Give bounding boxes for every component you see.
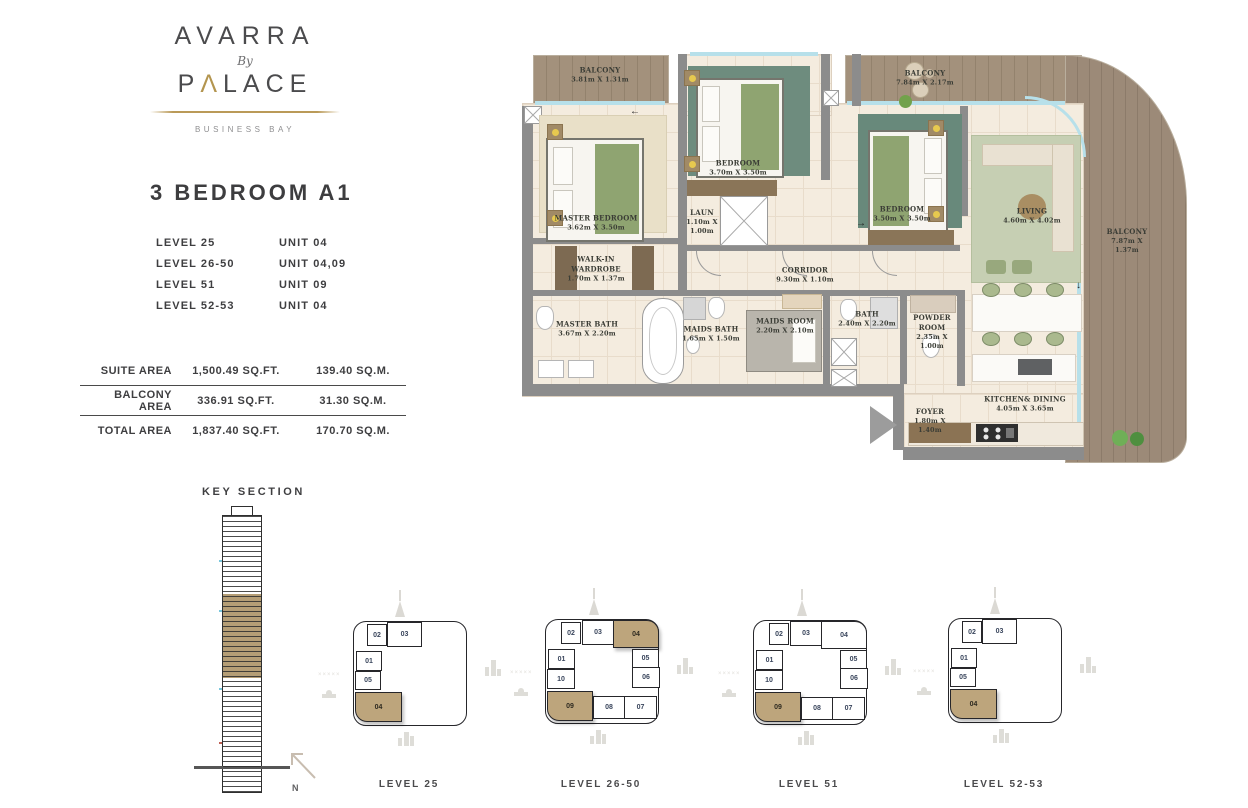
area-sqm: 31.30 SQ.M. bbox=[300, 395, 406, 407]
balcony-chair bbox=[912, 82, 929, 98]
buildings-icon bbox=[590, 730, 606, 744]
direction-arrow-icon: ↓ bbox=[1076, 280, 1081, 291]
unit-cell: 02 bbox=[367, 624, 387, 646]
palace-p: P bbox=[178, 70, 201, 98]
gold-arch-icon: Λ bbox=[200, 70, 223, 98]
north-label: N bbox=[292, 783, 299, 793]
level-label: LEVEL 26-50 bbox=[156, 258, 279, 270]
key-section-title: KEY SECTION bbox=[202, 486, 305, 498]
dining-chair bbox=[1046, 332, 1064, 346]
palm-icon bbox=[1112, 430, 1128, 446]
burj-spire-icon bbox=[990, 587, 1000, 614]
wardrobe bbox=[868, 230, 954, 245]
level-row: LEVEL 26-50UNIT 04,09 bbox=[156, 258, 416, 270]
unit-cell: 06 bbox=[632, 667, 660, 688]
wall-lamp-icon bbox=[547, 124, 563, 140]
keyplan-label: LEVEL 25 bbox=[329, 779, 489, 790]
unit-cell: 03 bbox=[582, 620, 614, 645]
level-label: LEVEL 25 bbox=[156, 237, 279, 249]
wall-left bbox=[522, 106, 533, 396]
toilet bbox=[708, 297, 725, 319]
area-sqm: 139.40 SQ.M. bbox=[300, 365, 406, 377]
unit-cell: 07 bbox=[832, 697, 865, 720]
tower-tick bbox=[219, 560, 222, 562]
unit-label: UNIT 04,09 bbox=[279, 258, 346, 270]
area-sqft: 1,500.49 SQ.FT. bbox=[172, 365, 300, 377]
unit-cell: 05 bbox=[355, 671, 381, 690]
bridge-icon: ××××× bbox=[913, 669, 936, 675]
shaft-icon bbox=[823, 90, 839, 106]
stove-icon bbox=[976, 424, 1018, 442]
unit-cell: 08 bbox=[593, 696, 625, 719]
wall-lamp-icon bbox=[928, 120, 944, 136]
tower-tick bbox=[219, 688, 222, 690]
unit-cell: 03 bbox=[387, 622, 422, 647]
unit-cell: 02 bbox=[962, 621, 982, 643]
sink bbox=[568, 360, 594, 378]
pouf bbox=[1012, 260, 1032, 274]
buildings-icon bbox=[677, 658, 693, 674]
burj-spire-icon bbox=[797, 589, 807, 616]
bridge-icon: ××××× bbox=[510, 670, 533, 676]
unit-label: UNIT 04 bbox=[279, 300, 328, 312]
level-label: LEVEL 52-53 bbox=[156, 300, 279, 312]
unit-cell: 08 bbox=[801, 697, 833, 720]
walkin-closet bbox=[632, 246, 654, 290]
shaft-icon bbox=[831, 338, 857, 366]
keyplan-level-26-50: 02 03 04 01 10 05 06 09 08 07 bbox=[545, 619, 659, 724]
level-row: LEVEL 25UNIT 04 bbox=[156, 237, 416, 249]
boat-icon bbox=[514, 688, 528, 696]
north-arrow-icon bbox=[284, 746, 320, 782]
window-top-right bbox=[847, 101, 1065, 105]
area-sqft: 336.91 SQ.FT. bbox=[172, 395, 300, 407]
floor-plan: ← → ↓ BALCONY3.81m X 1.31m BEDROOM3.70m … bbox=[520, 38, 1188, 483]
brand-palace: PΛLACE bbox=[150, 70, 340, 99]
wardrobe bbox=[687, 180, 777, 196]
bathtub bbox=[642, 298, 684, 384]
wall-walkin-bottom bbox=[533, 290, 678, 296]
kitchen-cabinet bbox=[909, 423, 971, 443]
dining-chair bbox=[1014, 332, 1032, 346]
level-label: LEVEL 51 bbox=[156, 279, 279, 291]
palm-icon bbox=[1130, 432, 1144, 446]
dining-chair bbox=[982, 283, 1000, 297]
unit-cell-highlight: 09 bbox=[547, 691, 593, 721]
window-bedroom-mid bbox=[690, 52, 818, 56]
area-table: SUITE AREA 1,500.49 SQ.FT. 139.40 SQ.M. … bbox=[80, 356, 406, 445]
area-sqm: 170.70 SQ.M. bbox=[300, 425, 406, 437]
unit-cell: 06 bbox=[840, 668, 868, 689]
key-section-tower bbox=[222, 515, 262, 793]
unit-cell: 01 bbox=[756, 650, 783, 670]
bed-duvet bbox=[595, 144, 639, 234]
tower-highlight-band bbox=[223, 594, 261, 678]
buildings-icon bbox=[485, 660, 501, 676]
keyplan-label: LEVEL 26-50 bbox=[521, 779, 681, 790]
unit-cell: 01 bbox=[951, 648, 977, 668]
walkin-closet bbox=[555, 246, 577, 290]
palace-rest: LACE bbox=[223, 70, 312, 98]
maids-bed bbox=[746, 310, 822, 372]
unit-cell-highlight: 09 bbox=[755, 692, 801, 722]
bed-pillow bbox=[924, 138, 942, 174]
area-label: TOTAL AREA bbox=[80, 425, 172, 437]
dining-chair bbox=[1014, 283, 1032, 297]
plant-icon bbox=[899, 95, 912, 108]
buildings-icon bbox=[1080, 657, 1096, 673]
unit-cell: 03 bbox=[790, 621, 822, 646]
sink bbox=[538, 360, 564, 378]
unit-cell: 02 bbox=[561, 622, 581, 644]
shower bbox=[683, 297, 706, 320]
buildings-icon bbox=[398, 732, 414, 746]
buildings-icon bbox=[993, 729, 1009, 743]
sink bbox=[686, 336, 700, 354]
bathtub-inner bbox=[649, 307, 677, 375]
brand-logo: AVARRA By PΛLACE BUSINESS BAY bbox=[150, 22, 340, 134]
shaft-icon bbox=[831, 369, 857, 387]
entry-arrow-icon bbox=[870, 406, 897, 444]
direction-arrow-icon: → bbox=[856, 218, 866, 229]
bedroom-mid-bed bbox=[696, 78, 784, 178]
wall-bath-powder bbox=[900, 290, 907, 384]
powder-counter bbox=[910, 295, 956, 313]
dining-chair bbox=[1046, 283, 1064, 297]
tower-tick bbox=[219, 610, 222, 612]
area-row-suite: SUITE AREA 1,500.49 SQ.FT. 139.40 SQ.M. bbox=[80, 356, 406, 386]
wall-bottom-right bbox=[903, 447, 1084, 460]
unit-cell: 03 bbox=[982, 619, 1017, 644]
brand-name: AVARRA bbox=[150, 22, 340, 51]
keyplan-label: LEVEL 52-53 bbox=[924, 779, 1084, 790]
master-bed bbox=[546, 138, 644, 242]
unit-cell: 07 bbox=[624, 696, 657, 719]
wall-bedroom3-left bbox=[852, 54, 861, 106]
unit-cell: 01 bbox=[548, 649, 575, 669]
area-sqft: 1,837.40 SQ.FT. bbox=[172, 425, 300, 437]
page-title: 3 BEDROOM A1 bbox=[150, 180, 353, 206]
shower-tub bbox=[870, 297, 898, 329]
burj-spire-icon bbox=[589, 588, 599, 615]
keyplan-level-52-53: 02 03 01 05 04 bbox=[948, 618, 1062, 723]
bridge-icon: ××××× bbox=[318, 672, 341, 678]
wall-powder-right bbox=[957, 290, 965, 386]
balcony-table bbox=[925, 69, 934, 78]
toilet bbox=[922, 334, 940, 358]
bed-pillow bbox=[702, 86, 720, 122]
gold-divider bbox=[150, 111, 340, 113]
tower-tick bbox=[219, 742, 222, 744]
unit-cell: 05 bbox=[950, 668, 976, 687]
area-row-total: TOTAL AREA 1,837.40 SQ.FT. 170.70 SQ.M. bbox=[80, 416, 406, 445]
pouf bbox=[986, 260, 1006, 274]
elevator-icon bbox=[720, 196, 768, 246]
bridge-icon: ××××× bbox=[718, 671, 741, 677]
bed-duvet bbox=[741, 84, 779, 170]
unit-cell: 04 bbox=[821, 621, 867, 649]
wall-corridor-left bbox=[678, 180, 687, 296]
buildings-icon bbox=[885, 659, 901, 675]
keyplan-label: LEVEL 51 bbox=[729, 779, 889, 790]
keyplan-level-25: 02 03 01 05 04 bbox=[353, 621, 467, 726]
bed-pillow bbox=[792, 319, 816, 363]
toilet bbox=[840, 299, 857, 321]
boat-icon bbox=[322, 690, 336, 698]
direction-arrow-icon: ← bbox=[630, 106, 640, 117]
unit-label: UNIT 04 bbox=[279, 237, 328, 249]
buildings-icon bbox=[798, 731, 814, 745]
dining-table bbox=[972, 294, 1082, 332]
boat-icon bbox=[917, 687, 931, 695]
unit-cell: 10 bbox=[547, 669, 575, 689]
maids-closet bbox=[782, 294, 822, 309]
brand-by: By bbox=[150, 54, 340, 68]
window-master bbox=[535, 101, 665, 105]
wall-lamp-icon bbox=[684, 70, 700, 86]
dining-chair bbox=[982, 332, 1000, 346]
unit-label: UNIT 09 bbox=[279, 279, 328, 291]
wall-lamp-icon bbox=[684, 156, 700, 172]
bed-pillow bbox=[702, 126, 720, 162]
boat-icon bbox=[722, 689, 736, 697]
area-row-balcony: BALCONY AREA 336.91 SQ.FT. 31.30 SQ.M. bbox=[80, 386, 406, 416]
toilet bbox=[536, 306, 554, 330]
wall-maids-right bbox=[823, 290, 830, 384]
brochure-page: AVARRA By PΛLACE BUSINESS BAY 3 BEDROOM … bbox=[0, 0, 1248, 808]
unit-cell: 05 bbox=[840, 650, 867, 669]
unit-cell-highlight: 04 bbox=[355, 692, 402, 722]
wall-bedroom-mid-right bbox=[821, 54, 830, 180]
area-label: SUITE AREA bbox=[80, 365, 172, 377]
unit-cell: 05 bbox=[632, 649, 659, 668]
wall-lamp-icon bbox=[928, 206, 944, 222]
unit-cell: 02 bbox=[769, 623, 789, 645]
brand-location: BUSINESS BAY bbox=[150, 125, 340, 134]
unit-cell-highlight: 04 bbox=[613, 620, 659, 648]
coffee-table bbox=[1018, 194, 1046, 220]
bed-duvet bbox=[873, 136, 909, 226]
keyplan-level-51: 02 03 04 01 10 05 06 09 08 07 bbox=[753, 620, 867, 725]
burj-spire-icon bbox=[395, 590, 405, 617]
balcony-chair bbox=[905, 62, 924, 80]
level-row: LEVEL 52-53UNIT 04 bbox=[156, 300, 416, 312]
sofa bbox=[1052, 144, 1074, 252]
island-sink bbox=[1018, 359, 1052, 375]
unit-cell: 10 bbox=[755, 670, 783, 690]
balcony-deck-top-left bbox=[533, 55, 669, 107]
area-label: BALCONY AREA bbox=[80, 389, 172, 413]
level-row: LEVEL 51UNIT 09 bbox=[156, 279, 416, 291]
unit-cell-highlight: 04 bbox=[950, 689, 997, 719]
unit-cell: 01 bbox=[356, 651, 382, 671]
wall-lamp-icon bbox=[547, 210, 563, 226]
bed-pillow bbox=[553, 147, 573, 185]
